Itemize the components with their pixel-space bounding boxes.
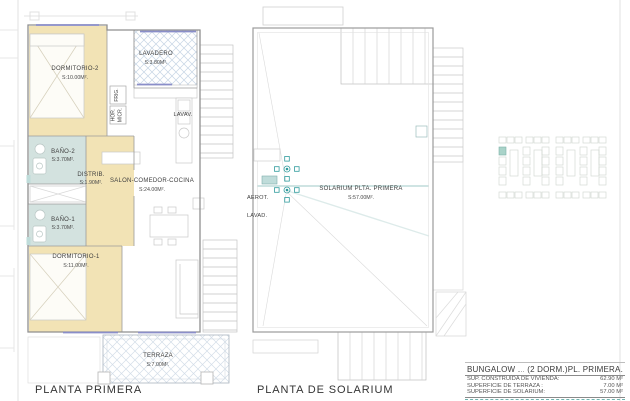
- plan-primera-drawing: DORMITORIO-2 S:10.00M². LAVADERO S:3.80M…: [27, 25, 238, 384]
- row-solarium-label: SUPERFICIE DE SOLARIUM:: [467, 389, 545, 396]
- site-key-block-left: [499, 137, 549, 198]
- title-block-model: BUNGALOW: [467, 365, 515, 374]
- lavad-sink-box: [262, 176, 277, 184]
- label-lavad: LAVAD.: [247, 213, 268, 219]
- label-lavav: LAVAV.: [173, 112, 192, 118]
- label-banyo2-area: S:3.70M².: [52, 157, 75, 163]
- aerothermal-unit-icon: [275, 157, 300, 203]
- solarium-chimney-box: [254, 149, 280, 161]
- label-dormitorio2-name: DORMITORIO-2: [51, 66, 99, 72]
- label-banyo2-name: BAÑO-2: [51, 148, 75, 155]
- title-block-teal-rule: [465, 399, 625, 400]
- title-block: BUNGALOW (2 DORM.) PL. PRIMERA. SUP. CON…: [465, 362, 625, 400]
- solarium-step: [253, 340, 318, 353]
- solarium-right-stair: [433, 48, 466, 336]
- label-dormitorio1-name: DORMITORIO-1: [52, 254, 100, 260]
- pergola-top: [341, 28, 433, 84]
- label-dormitorio2-area: S:10.00M².: [62, 75, 88, 81]
- label-solarium-area: S:57.00M².: [348, 195, 374, 201]
- solarium-top-overhang: [263, 7, 343, 25]
- title-block-floor: PL. PRIMERA.: [568, 365, 623, 374]
- room-lavadero-hatch: [134, 30, 197, 88]
- title-block-row: SUP. CONSTRUIDA DE VIVIENDA: 62.90 M²: [465, 376, 625, 383]
- exterior-stair-top: [200, 45, 233, 158]
- exterior-stair-bottom: [203, 240, 237, 332]
- label-salon-area: S:24.00M².: [139, 187, 165, 193]
- label-frig: FRIG.: [114, 88, 120, 101]
- label-banyo1-name: BAÑO-1: [51, 216, 75, 223]
- terraza-column-left: [98, 372, 110, 384]
- title-block-dots: [518, 370, 524, 372]
- title-block-dorms: (2 DORM.): [527, 365, 567, 374]
- label-micr: MICR.: [118, 108, 124, 122]
- bath2-window: [27, 175, 31, 183]
- label-lavadero-area: S:3.80M².: [145, 60, 168, 66]
- row-vivienda-value: 62.90 M²: [600, 376, 623, 383]
- entry-porch: [28, 337, 100, 383]
- site-key-plan: [499, 137, 606, 198]
- right-wall-box: [416, 126, 427, 137]
- title-block-header: BUNGALOW (2 DORM.) PL. PRIMERA.: [465, 363, 625, 376]
- plan-primera-title: PLANTA PRIMERA: [35, 384, 142, 396]
- label-dormitorio1-area: S:11.00M².: [63, 263, 89, 269]
- row-terraza-label: SUPERFICIE DE TERRAZA :: [467, 383, 543, 390]
- floorplan-canvas: DORMITORIO-2 S:10.00M². LAVADERO S:3.80M…: [0, 0, 630, 401]
- plan-solarium-drawing: SOLARIUM PLTA. PRIMERA S:57.00M². AEROT.…: [247, 7, 466, 380]
- label-hor: HOR.: [111, 109, 117, 122]
- label-terraza-name: TERRAZA: [143, 353, 173, 359]
- terraza-column-right: [201, 372, 213, 384]
- row-vivienda-label: SUP. CONSTRUIDA DE VIVIENDA:: [467, 376, 559, 383]
- title-block-row: SUPERFICIE DE SOLARIUM: 57.00 M²: [465, 389, 625, 396]
- row-terraza-value: 7.00 M²: [603, 383, 623, 390]
- label-distrib-area: S:1.90M².: [80, 180, 103, 186]
- label-distrib-name: DISTRIB.: [77, 172, 104, 178]
- bath1-window: [27, 237, 31, 245]
- label-lavadero-name: LAVADERO: [139, 51, 173, 57]
- site-key-highlighted-unit: [499, 147, 506, 155]
- label-salon-name: SALON-COMEDOR-COCINA: [110, 178, 194, 184]
- plan-solarium-title: PLANTA DE SOLARIUM: [257, 384, 393, 396]
- row-solarium-value: 57.00 M²: [600, 389, 623, 396]
- title-block-row: SUPERFICIE DE TERRAZA : 7.00 M²: [465, 383, 625, 390]
- drawing-sheet: DORMITORIO-2 S:10.00M². LAVADERO S:3.80M…: [0, 0, 630, 401]
- label-banyo1-area: S:3.70M².: [52, 225, 75, 231]
- label-terraza-area: S:7.00M².: [147, 362, 170, 368]
- label-solarium-name: SOLARIUM PLTA. PRIMERA: [319, 186, 402, 192]
- pergola-bottom: [338, 332, 426, 380]
- site-key-block-right: [556, 137, 606, 198]
- label-aerot: AEROT.: [247, 195, 269, 201]
- title-block-bottom-rule: [465, 397, 625, 398]
